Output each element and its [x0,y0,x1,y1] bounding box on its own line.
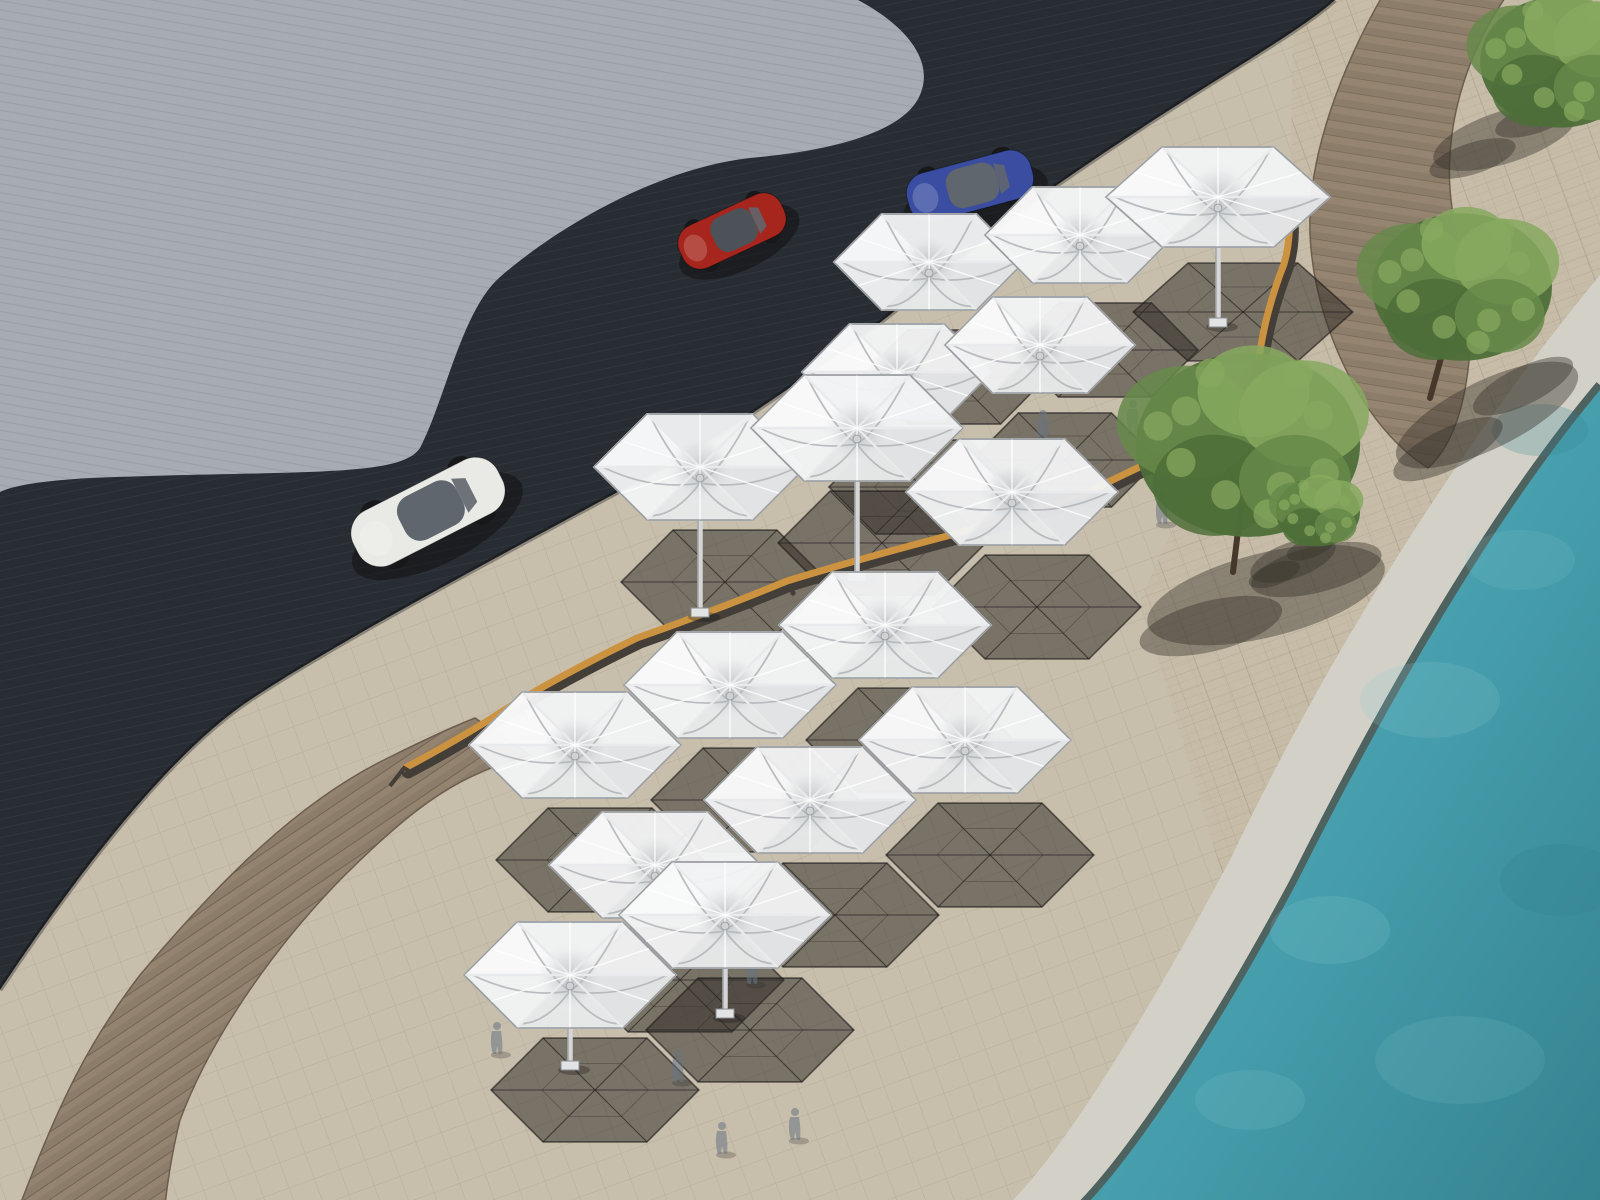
strut-hub [1036,352,1044,360]
foliage-speck [1196,359,1225,388]
mast-base-plate [716,1009,734,1018]
strut-hub [1076,242,1084,250]
strut-hub [721,922,729,930]
foliage-speck [1320,532,1331,543]
foliage-speck [1396,289,1419,312]
mast-base-plate [561,1061,579,1070]
bench-leg [790,590,795,595]
strut-hub [881,632,889,640]
foliage-speck [1211,480,1240,509]
foliage-speck [1341,517,1352,528]
foliage-speck [1534,87,1555,108]
strut-hub [806,807,814,815]
pedestrian-head [493,1022,501,1030]
pedestrian-head [791,1108,799,1116]
foliage-speck [1512,298,1535,321]
foliage-speck [1289,494,1300,505]
strut-hub [961,747,969,755]
foliage-speck [1420,218,1443,241]
strut-hub [853,435,861,443]
foliage-speck [1287,513,1298,524]
foliage-speck [1284,359,1313,388]
strut-hub [726,692,734,700]
strut-hub [696,474,704,482]
foliage-speck [1304,401,1333,430]
foliage-speck [1166,448,1195,477]
foliage-speck [1466,331,1489,354]
mast-base-plate [1209,318,1227,327]
foliage-speck [1298,480,1309,491]
foliage-speck [1304,525,1315,536]
strut-hub [566,982,574,990]
foliage-speck [1378,260,1401,283]
foliage-speck [1325,522,1336,533]
pedestrian-head [718,1122,726,1130]
rendering-canvas [0,0,1600,1200]
foliage-speck [1507,251,1530,274]
foliage-speck [1432,315,1455,338]
mast-base-plate [691,608,709,617]
foliage-blob [1422,207,1512,281]
strut-hub [1008,499,1016,507]
foliage-speck [1401,248,1424,271]
foliage-speck [1477,309,1500,332]
foliage-speck [1564,101,1585,122]
foliage-speck [1279,499,1290,510]
foliage-speck [1523,0,1544,21]
foliage-speck [1172,397,1201,426]
pedestrian-head [674,1050,682,1058]
strut-hub [925,269,933,277]
foliage-speck [1491,218,1514,241]
foliage-blob [1299,475,1341,509]
pedestrian-head [1039,410,1047,418]
foliage-speck [1144,412,1173,441]
foliage-speck [1573,81,1594,102]
foliage-speck [1331,480,1342,491]
foliage-blob [1198,345,1310,437]
foliage-speck [1485,38,1506,59]
aerial-promenade-rendering [0,0,1600,1200]
strut-hub [571,752,579,760]
foliage-speck [1502,64,1523,85]
foliage-speck [1505,27,1526,48]
strut-hub [1214,204,1222,212]
foliage-speck [1339,495,1350,506]
